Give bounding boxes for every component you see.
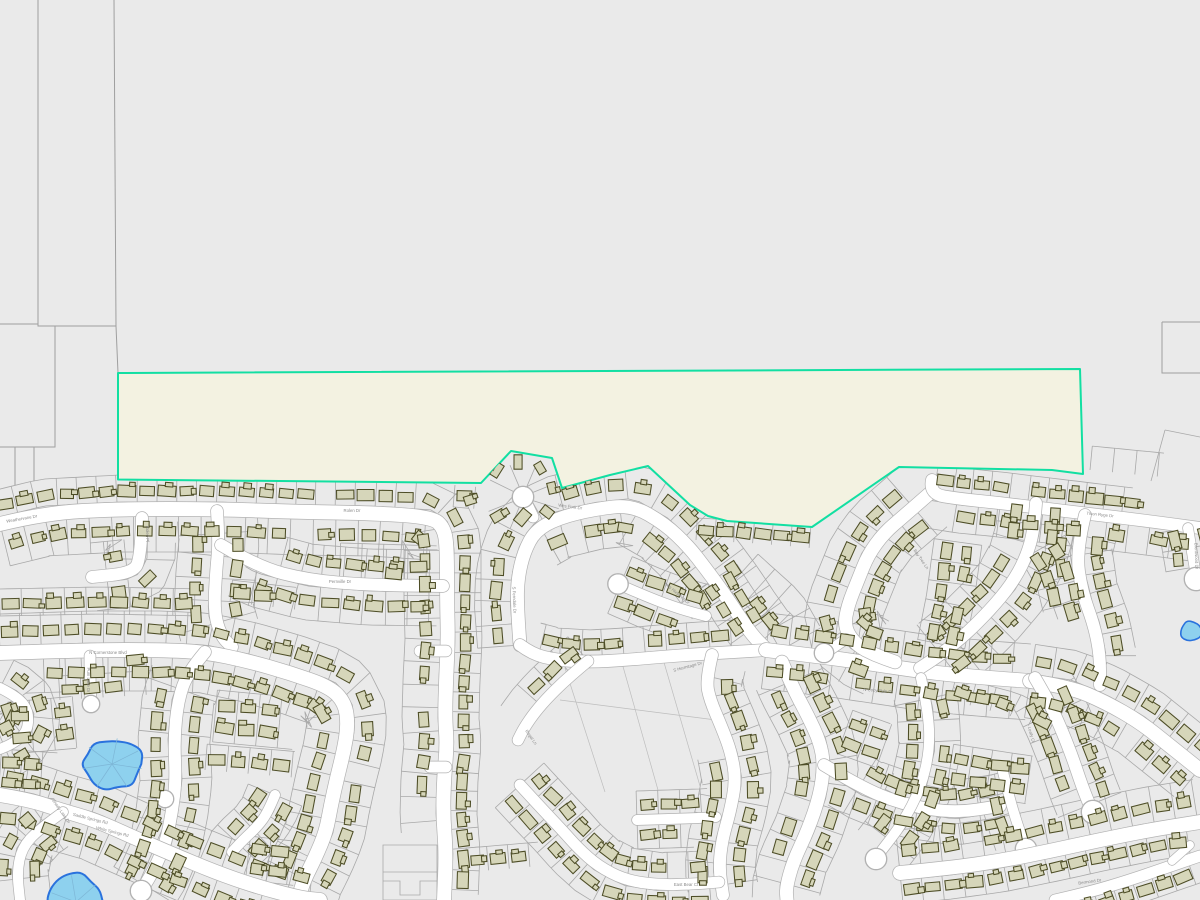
svg-text:Rolen Dr: Rolen Dr bbox=[344, 508, 362, 513]
svg-text:East Bear Ct: East Bear Ct bbox=[674, 882, 699, 887]
svg-text:Brentwood Dr: Brentwood Dr bbox=[1194, 543, 1200, 570]
svg-text:Pernville Dr: Pernville Dr bbox=[329, 579, 352, 584]
svg-text:Pum Lake Dr: Pum Lake Dr bbox=[86, 667, 91, 693]
svg-text:Rolen Pl: Rolen Pl bbox=[145, 526, 150, 542]
svg-text:S Ferndale Dr: S Ferndale Dr bbox=[512, 586, 518, 613]
svg-text:N Cornerstone Blvd: N Cornerstone Blvd bbox=[89, 650, 127, 655]
